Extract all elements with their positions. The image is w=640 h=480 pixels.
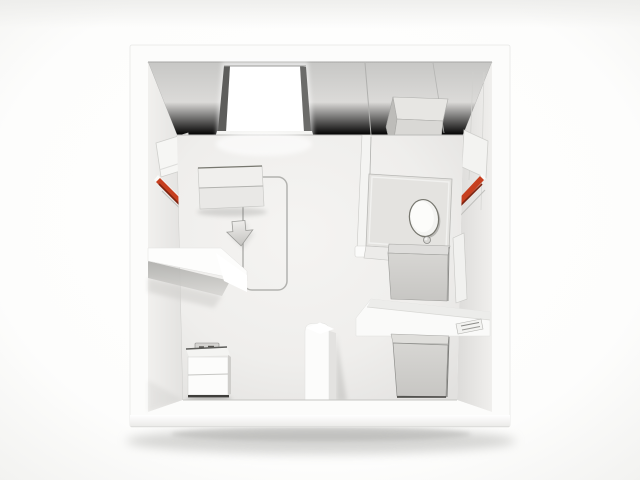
bottom-wall-top-face (148, 400, 492, 415)
flush-knob (424, 237, 431, 244)
dresser (197, 166, 267, 217)
window (215, 62, 314, 140)
nightstand-front (188, 357, 228, 395)
nightstand-side (228, 355, 231, 395)
flush-knob-highlight (425, 238, 428, 241)
sink-unit-front (388, 253, 448, 301)
platform-top (366, 174, 452, 251)
background-top-shade (0, 0, 640, 28)
dresser-bottom-section (199, 186, 264, 209)
shell-bottom-face (130, 415, 510, 427)
window-light-pool (216, 132, 312, 156)
nightstand (186, 343, 232, 402)
studio-render (0, 0, 640, 480)
dresser-top-section (198, 166, 263, 188)
shower-unit-front (393, 343, 448, 397)
shower-unit-top (391, 334, 449, 344)
window-glass (224, 66, 306, 131)
upper-cabinet-top-face (393, 97, 448, 121)
stub-wall-front (305, 323, 329, 401)
studio-render-canvas (0, 0, 640, 480)
nightstand-base (188, 395, 229, 397)
